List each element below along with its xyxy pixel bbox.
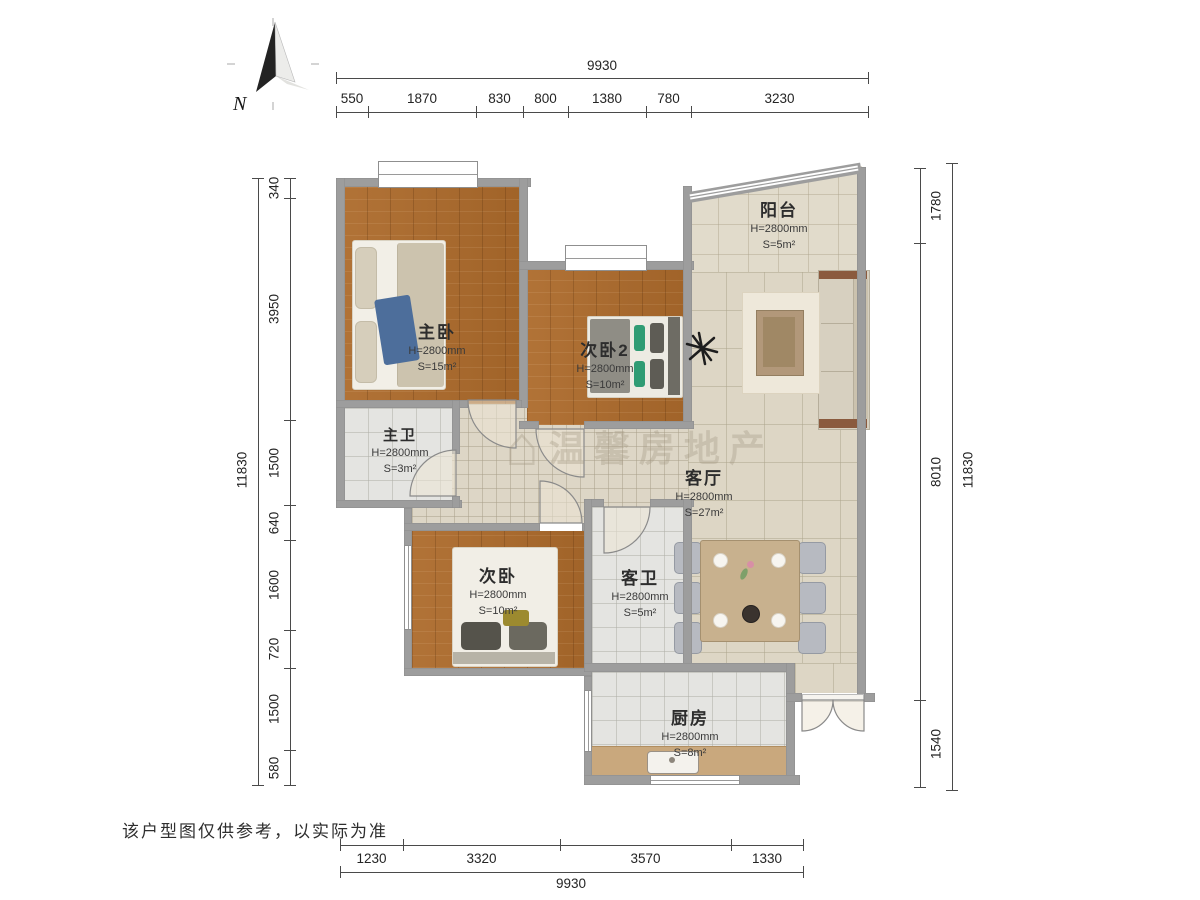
cushion-divider: [821, 323, 853, 324]
wall-segment: [584, 663, 795, 672]
room-label-bedroom2: 次卧2 H=2800mm S=10m²: [576, 336, 633, 393]
dim-tick: [284, 178, 296, 179]
dining-table: [700, 540, 800, 642]
dim-tick: [803, 839, 804, 851]
dim-tick: [368, 106, 369, 118]
dim-tick: [803, 866, 804, 878]
room-name: 厨房: [661, 704, 718, 729]
dim-label: 1600: [267, 570, 282, 600]
pillow: [355, 247, 377, 309]
dim-label: 8010: [929, 456, 944, 486]
wall-segment: [584, 421, 694, 429]
wall-segment: [404, 668, 592, 676]
dim-tick: [336, 72, 337, 84]
dim-tick: [252, 178, 264, 179]
wall-segment: [336, 178, 345, 508]
dim-label: 1230: [356, 851, 386, 866]
room-height: H=2800mm: [469, 587, 526, 603]
room-name: 次卧2: [576, 336, 633, 361]
dim-tick: [914, 787, 926, 788]
pillow: [355, 321, 377, 383]
dim-seg-line-right: [920, 168, 921, 787]
room-height: H=2800mm: [661, 729, 718, 745]
headboard: [668, 317, 680, 395]
room-label-bedroom: 次卧 H=2800mm S=10m²: [469, 562, 526, 619]
dim-tick: [868, 72, 869, 84]
wall-segment: [336, 400, 468, 408]
dim-label: 800: [534, 91, 557, 106]
room-name: 客卫: [611, 564, 668, 589]
wall-segment: [452, 496, 460, 508]
dim-tick: [284, 198, 296, 199]
dim-tick: [284, 750, 296, 751]
window: [565, 245, 647, 271]
dim-tick: [946, 790, 958, 791]
dim-seg-line-left: [290, 178, 291, 785]
dim-tick: [284, 540, 296, 541]
room-area: S=5m²: [611, 605, 668, 621]
room-label-master-bathroom: 主卫 H=2800mm S=3m²: [371, 424, 428, 477]
wall-segment: [683, 186, 692, 429]
plate: [771, 553, 786, 568]
floor-plan-canvas: 9930550187083080013807803230123033203570…: [0, 0, 1200, 900]
room-area: S=15m²: [408, 359, 465, 375]
room-height: H=2800mm: [750, 221, 807, 237]
dim-tick: [336, 106, 337, 118]
room-name: 主卫: [371, 424, 428, 445]
dim-label: 11830: [235, 452, 250, 489]
pillow: [634, 361, 645, 387]
wall-segment: [452, 400, 460, 454]
dim-tick: [646, 106, 647, 118]
dim-tick: [284, 505, 296, 506]
dim-tick: [284, 630, 296, 631]
dark-plate: [742, 605, 760, 623]
dim-label: 1780: [929, 190, 944, 220]
wall-segment: [519, 421, 539, 429]
dim-tick: [560, 839, 561, 851]
dim-label: 1380: [592, 91, 622, 106]
dim-label: 340: [267, 177, 282, 200]
room-area: S=10m²: [469, 603, 526, 619]
wall-segment: [336, 500, 462, 508]
dim-total-line-right: [952, 163, 953, 790]
dim-tick: [252, 785, 264, 786]
dim-tick: [523, 106, 524, 118]
dim-tick: [946, 163, 958, 164]
window: [650, 775, 740, 785]
dining-chair: [798, 622, 826, 654]
window: [378, 161, 478, 188]
dim-tick: [914, 243, 926, 244]
room-area: S=5m²: [750, 237, 807, 253]
entry-threshold: [802, 694, 864, 702]
dim-label: 1540: [929, 728, 944, 758]
dim-label: 3230: [764, 91, 794, 106]
pillow: [634, 325, 645, 351]
dim-tick: [284, 420, 296, 421]
dim-tick: [914, 700, 926, 701]
floor-plan-page: { "meta": { "compass_label": "N", "discl…: [0, 0, 1200, 900]
dim-label: 550: [341, 91, 364, 106]
disclaimer-text: 该户型图仅供参考，以实际为准: [122, 817, 388, 842]
dim-label: 3320: [466, 851, 496, 866]
dim-tick: [403, 839, 404, 851]
dim-label: 580: [267, 756, 282, 779]
wall-segment: [519, 178, 528, 408]
dim-label: 830: [488, 91, 511, 106]
room-area: S=3m²: [371, 461, 428, 477]
room-area: S=10m²: [576, 377, 633, 393]
dim-total-line-top: [336, 78, 868, 79]
dim-tick: [914, 168, 926, 169]
room-name: 客厅: [675, 464, 732, 489]
plate: [713, 613, 728, 628]
dining-chair: [798, 542, 826, 574]
dim-label: 1870: [407, 91, 437, 106]
wall-segment: [786, 693, 802, 702]
room-height: H=2800mm: [408, 343, 465, 359]
dim-tick: [340, 866, 341, 878]
dim-label: 720: [267, 638, 282, 661]
wall-segment: [584, 499, 592, 676]
table-inlay: [763, 317, 795, 367]
dim-tick: [284, 785, 296, 786]
dim-seg-line-bottom: [340, 845, 803, 846]
dim-label: 1330: [752, 851, 782, 866]
wall-segment: [786, 663, 795, 785]
dim-label: 1500: [267, 694, 282, 724]
wall-segment: [857, 167, 866, 702]
window: [404, 545, 412, 630]
room-area: S=27m²: [675, 505, 732, 521]
dim-label: 640: [267, 511, 282, 534]
wall-segment: [683, 499, 692, 672]
pillow: [650, 323, 664, 353]
dim-label: 11830: [961, 452, 976, 489]
wall-segment: [404, 523, 540, 531]
dim-label: 3570: [630, 851, 660, 866]
flower-stem: [739, 567, 750, 580]
room-name: 阳台: [750, 196, 807, 221]
coffee-table: [756, 310, 804, 376]
room-label-master-bedroom: 主卧 H=2800mm S=15m²: [408, 318, 465, 375]
dim-tick: [284, 668, 296, 669]
window: [584, 690, 592, 752]
dim-seg-line-top: [336, 112, 868, 113]
room-name: 次卧: [469, 562, 526, 587]
pillow: [650, 359, 664, 389]
room-label-guest-bathroom: 客卫 H=2800mm S=5m²: [611, 564, 668, 621]
room-height: H=2800mm: [675, 489, 732, 505]
dim-label: 9930: [587, 58, 617, 73]
bed-frame: [453, 652, 555, 664]
room-area: S=8m²: [661, 745, 718, 761]
room-label-balcony: 阳台 H=2800mm S=5m²: [750, 196, 807, 253]
dim-tick: [476, 106, 477, 118]
flower: [747, 561, 754, 568]
room-height: H=2800mm: [371, 445, 428, 461]
dim-tick: [868, 106, 869, 118]
room-name: 主卧: [408, 318, 465, 343]
room-label-kitchen: 厨房 H=2800mm S=8m²: [661, 704, 718, 761]
pillow: [509, 622, 547, 650]
dim-tick: [568, 106, 569, 118]
dim-tick: [731, 839, 732, 851]
dining-chair: [798, 582, 826, 614]
wall-segment: [864, 693, 875, 702]
dim-total-line-left: [258, 178, 259, 785]
entry-floor: [795, 663, 866, 693]
dim-label: 3950: [267, 294, 282, 324]
plate: [713, 553, 728, 568]
dim-label: 780: [657, 91, 680, 106]
room-height: H=2800mm: [576, 361, 633, 377]
wall-segment: [516, 400, 522, 408]
pillow: [461, 622, 501, 650]
dim-total-line-bottom: [340, 872, 803, 873]
dim-label: 1500: [267, 447, 282, 477]
cushion-divider: [821, 371, 853, 372]
room-height: H=2800mm: [611, 589, 668, 605]
dim-tick: [691, 106, 692, 118]
room-label-living-room: 客厅 H=2800mm S=27m²: [675, 464, 732, 521]
plate: [771, 613, 786, 628]
dim-label: 9930: [556, 876, 586, 891]
